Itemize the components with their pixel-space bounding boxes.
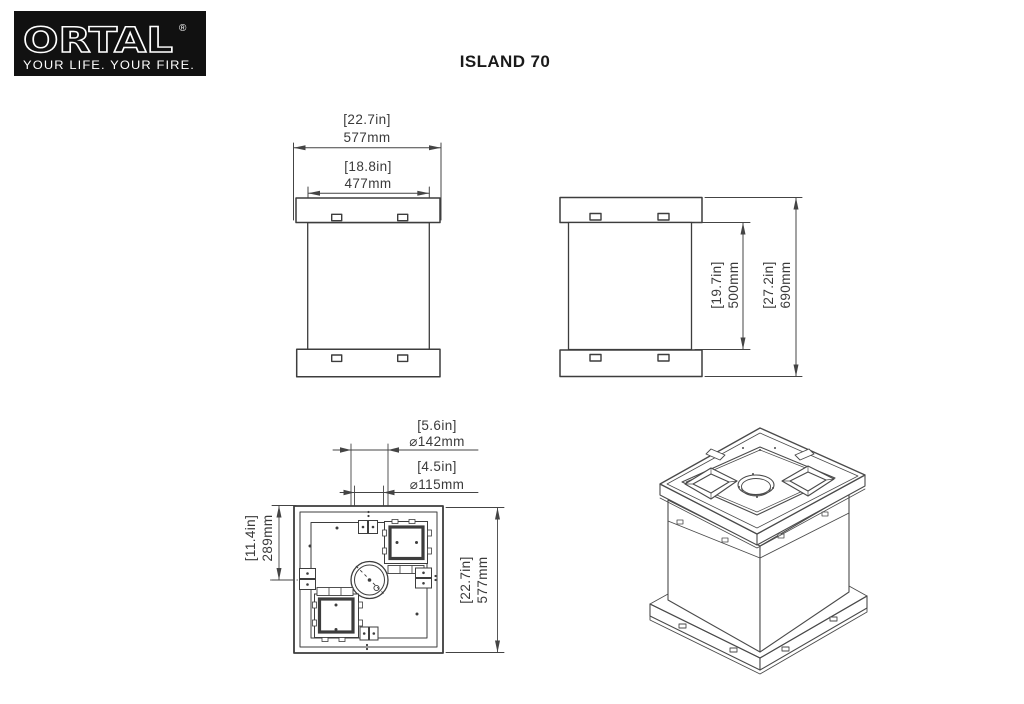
mount-slot: [590, 355, 601, 362]
dim-front-overall-inches: [22.7in]: [343, 112, 390, 128]
dim-flue-inner-mm: ⌀115mm: [410, 477, 465, 493]
dim-plan-center-offset: [11.4in] 289mm: [242, 514, 276, 561]
mount-slot: [590, 214, 601, 221]
dim-plan-width: [22.7in] 577mm: [457, 556, 491, 603]
front-body: [308, 223, 430, 350]
dim-front-body-inches: [18.8in]: [344, 159, 391, 175]
front-top-flange: [296, 198, 440, 223]
dim-plan-width-mm: 577mm: [474, 556, 491, 603]
registered-mark: ®: [179, 23, 187, 34]
side-body: [569, 223, 692, 350]
side-bottom-flange: [560, 350, 702, 377]
dim-side-overall-inches: [27.2in]: [760, 261, 777, 308]
dim-front-overall-mm: 577mm: [343, 130, 390, 146]
plan-opening-lower-left: [313, 588, 363, 642]
isometric-view-drawing: [635, 418, 885, 690]
side-top-flange: [560, 198, 702, 223]
mount-slot: [398, 355, 408, 361]
brand-tagline: YOUR LIFE. YOUR FIRE.: [23, 60, 195, 72]
plan-opening-upper-right: [383, 520, 432, 574]
brand-logo: ORTAL ® YOUR LIFE. YOUR FIRE.: [14, 11, 206, 76]
mount-slot: [658, 214, 669, 221]
brand-logo-art: ORTAL ® YOUR LIFE. YOUR FIRE.: [14, 11, 206, 76]
dim-flue-outer-mm: ⌀142mm: [409, 434, 465, 450]
dim-side-body-inches: [19.7in]: [708, 261, 725, 308]
drawing-sheet: ORTAL ® YOUR LIFE. YOUR FIRE. ISLAND 70: [0, 0, 1024, 704]
dim-front-body-mm: 477mm: [344, 176, 391, 192]
mount-slot: [332, 214, 342, 220]
mount-slot: [332, 355, 342, 361]
dim-side-body-mm: 500mm: [725, 261, 742, 308]
brand-wordmark: ORTAL: [23, 21, 173, 61]
dim-flue-inner-inches: [4.5in]: [417, 459, 457, 475]
dim-side-overall-height: [27.2in] 690mm: [760, 261, 794, 308]
front-bottom-flange: [297, 349, 440, 376]
dim-side-overall-mm: 690mm: [777, 261, 794, 308]
dim-side-body-height: [19.7in] 500mm: [708, 261, 742, 308]
front-view-drawing: [270, 100, 520, 390]
mount-slot: [398, 214, 408, 220]
dim-flue-outer-inches: [5.6in]: [417, 418, 457, 434]
dim-plan-offset-mm: 289mm: [259, 514, 276, 561]
dim-plan-offset-inches: [11.4in]: [242, 515, 259, 561]
dim-plan-width-inches: [22.7in]: [457, 556, 474, 603]
mount-slot: [658, 355, 669, 362]
page-title: ISLAND 70: [399, 52, 611, 72]
